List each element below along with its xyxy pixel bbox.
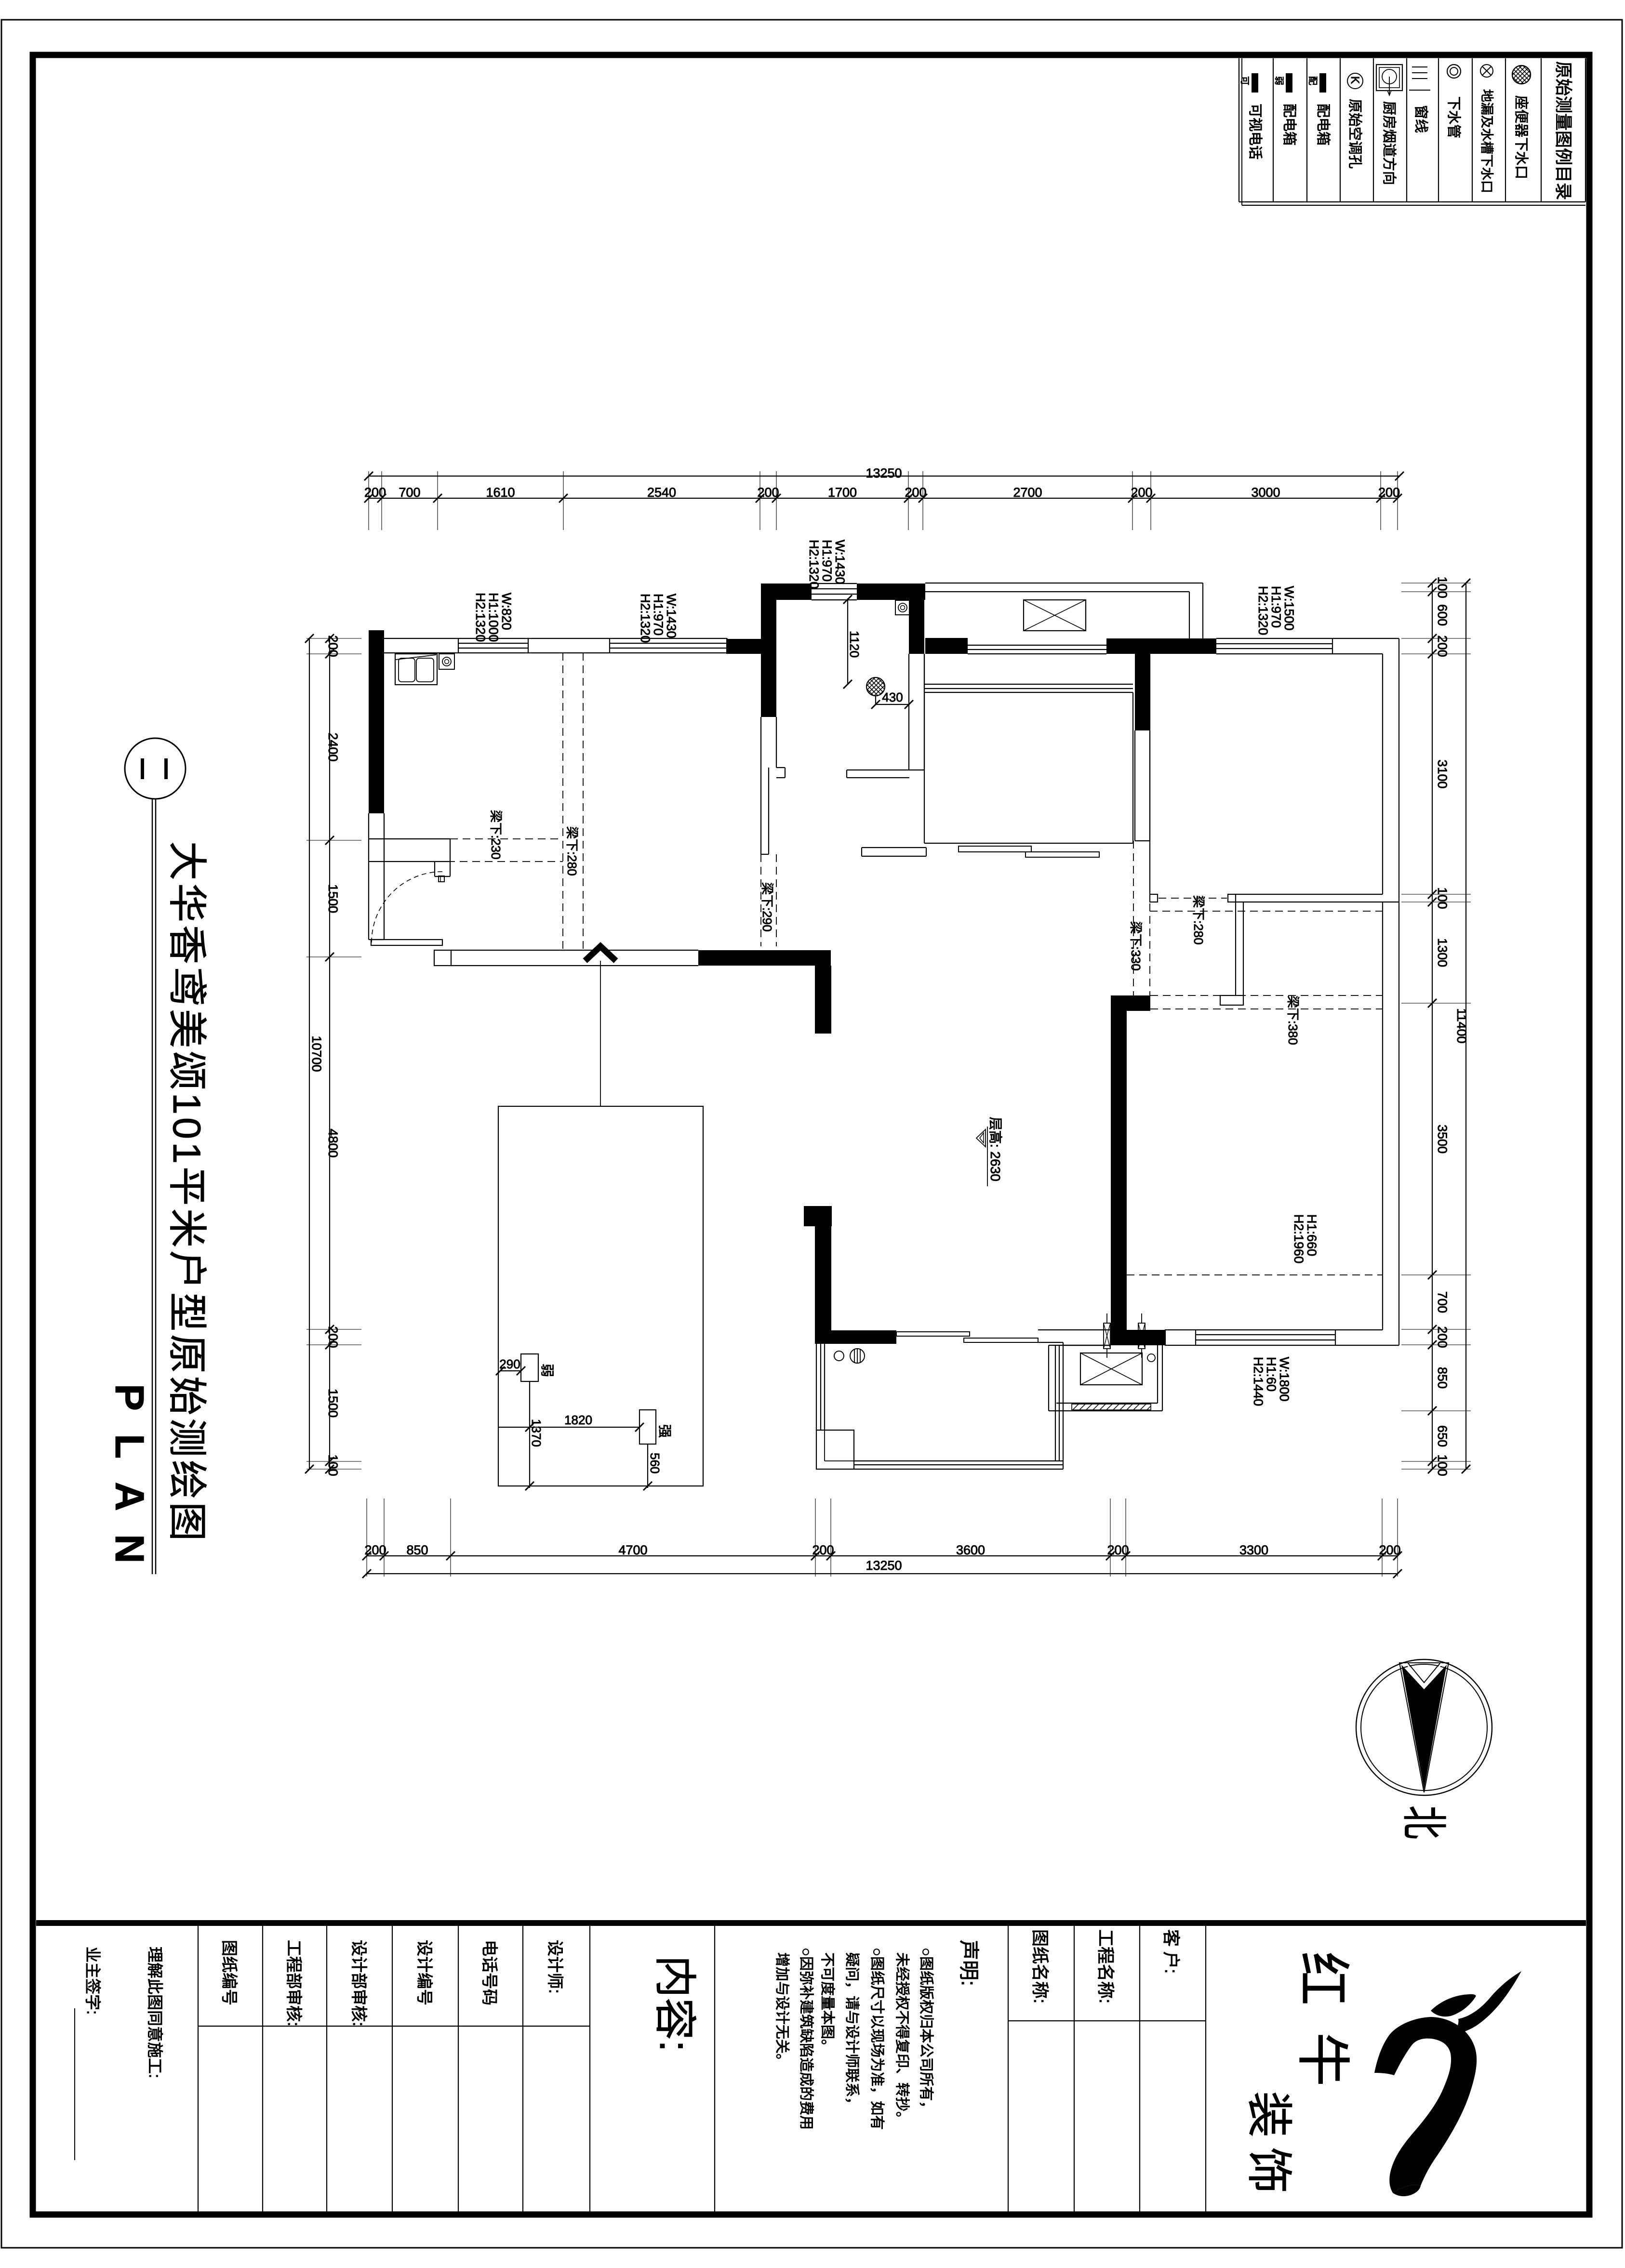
svg-text:100: 100 [1435,576,1450,598]
svg-text:600: 600 [1435,604,1450,626]
svg-text:H2:1320: H2:1320 [1256,586,1270,635]
svg-text:850: 850 [406,1543,428,1557]
svg-text:工程名称:: 工程名称: [1096,1929,1116,2003]
svg-text:W:1430: W:1430 [833,540,847,584]
svg-text:1820: 1820 [564,1413,592,1427]
svg-text:可: 可 [1239,76,1250,85]
svg-text:图纸名称:: 图纸名称: [1030,1929,1050,2003]
svg-text:200: 200 [757,485,779,500]
svg-text:W:820: W:820 [499,593,514,630]
svg-text:4700: 4700 [618,1543,647,1557]
svg-text:430: 430 [882,690,903,704]
svg-text:650: 650 [1435,1425,1450,1447]
svg-text:1300: 1300 [1435,938,1450,967]
svg-text:内容:: 内容: [651,1955,699,2052]
svg-text:H2:1440: H2:1440 [1251,1357,1265,1406]
svg-text:200: 200 [326,635,340,657]
svg-text:200: 200 [364,485,386,500]
svg-text:290: 290 [499,1357,520,1371]
svg-text:原始空调孔: 原始空调孔 [1347,99,1363,169]
svg-text:梁下:380: 梁下:380 [1286,995,1300,1045]
svg-text:工程部审核:: 工程部审核: [284,1940,303,2026]
svg-text:梁下:230: 梁下:230 [489,810,503,860]
svg-text:100: 100 [1435,887,1450,909]
svg-text:200: 200 [1107,1543,1129,1557]
svg-text:1370: 1370 [529,1419,544,1447]
svg-text:13250: 13250 [866,1558,902,1573]
svg-text:疑问，请与设计师联系，: 疑问，请与设计师联系， [844,1952,860,2111]
svg-text:不可度量本图。: 不可度量本图。 [819,1952,835,2054]
svg-text:700: 700 [399,485,420,500]
svg-text:200: 200 [326,1326,340,1348]
svg-text:13250: 13250 [866,466,902,480]
svg-text:图纸编号: 图纸编号 [220,1940,238,2005]
svg-text:强: 强 [657,1424,672,1438]
svg-text:1700: 1700 [828,485,857,500]
svg-text:层高: 2630: 层高: 2630 [988,1117,1003,1181]
svg-text:H2:1320: H2:1320 [638,594,653,643]
svg-text:2700: 2700 [1013,485,1042,500]
svg-text:200: 200 [812,1543,834,1557]
svg-text:业主签字:: 业主签字: [84,1947,102,2015]
svg-text:PLAN: PLAN [107,1384,152,1587]
svg-text:○图纸尺寸以现场为准，如有: ○图纸尺寸以现场为准，如有 [869,1948,885,2130]
svg-text:560: 560 [648,1453,662,1473]
svg-text:3300: 3300 [1239,1543,1268,1557]
svg-text:增加与设计无关。: 增加与设计无关。 [774,1952,790,2068]
svg-text:200: 200 [905,485,926,500]
svg-text:11400: 11400 [1454,1008,1469,1043]
svg-text:梁下:330: 梁下:330 [1129,921,1143,971]
svg-text:梁下:280: 梁下:280 [1191,895,1206,945]
svg-text:3500: 3500 [1435,1125,1450,1154]
svg-text:1500: 1500 [326,1389,340,1418]
svg-text:850: 850 [1435,1367,1450,1389]
svg-text:牛: 牛 [1292,2032,1353,2086]
svg-text:弱: 弱 [1274,76,1284,85]
svg-text:1120: 1120 [847,631,862,658]
svg-text:100: 100 [1435,1454,1450,1476]
svg-text:H1:1000: H1:1000 [486,593,501,642]
svg-text:3600: 3600 [956,1543,985,1557]
svg-text:K: K [1348,76,1361,84]
svg-text:红: 红 [1292,1951,1353,2005]
svg-text:地漏及水槽下水口: 地漏及水槽下水口 [1479,89,1494,193]
svg-text:H1:970: H1:970 [820,540,834,582]
svg-text:下水管: 下水管 [1446,96,1462,138]
svg-text:设计编号: 设计编号 [415,1940,433,2005]
svg-text:配电箱: 配电箱 [1281,104,1297,146]
svg-text:客 户:: 客 户: [1161,1929,1181,1974]
svg-text:H1:60: H1:60 [1264,1357,1279,1392]
svg-text:H2:1320: H2:1320 [473,593,488,642]
svg-text:3100: 3100 [1435,759,1450,788]
svg-text:W:1500: W:1500 [1282,586,1296,631]
svg-text:2540: 2540 [647,485,676,500]
svg-text:大华香鸢美颂101平米户型原始测绘图: 大华香鸢美颂101平米户型原始测绘图 [165,841,208,1544]
svg-text:200: 200 [1379,1543,1400,1557]
svg-text:200: 200 [1378,485,1400,500]
svg-text:200: 200 [1131,485,1152,500]
svg-text:电话号码: 电话号码 [480,1940,498,2005]
svg-text:配: 配 [1307,76,1318,85]
svg-text:4800: 4800 [326,1128,340,1157]
svg-text:200: 200 [364,1543,386,1557]
svg-text:10700: 10700 [309,1035,324,1072]
svg-text:装: 装 [1243,2091,1294,2137]
svg-text:梁下:280: 梁下:280 [565,826,579,876]
svg-text:设计师:: 设计师: [546,1940,564,1993]
svg-text:弱: 弱 [540,1364,555,1377]
svg-text:H2:1960: H2:1960 [1292,1214,1306,1263]
svg-text:厨房烟道方向: 厨房烟道方向 [1381,101,1397,185]
svg-text:未经授权不得复印、转抄。: 未经授权不得复印、转抄。 [894,1952,910,2126]
svg-text:北: 北 [1398,1805,1449,1839]
svg-text:声明:: 声明: [958,1940,980,1986]
svg-text:梁下:290: 梁下:290 [760,882,774,932]
svg-text:W:1430: W:1430 [664,594,679,638]
svg-text:饰: 饰 [1243,2147,1294,2193]
svg-text:200: 200 [1435,1326,1450,1348]
svg-text:1500: 1500 [326,884,340,913]
svg-text:2400: 2400 [326,732,340,761]
svg-text:1610: 1610 [486,485,515,500]
svg-text:配电箱: 配电箱 [1315,104,1331,146]
svg-text:H1:970: H1:970 [651,594,666,636]
svg-text:座便器下水口: 座便器下水口 [1513,95,1529,179]
svg-text:原始测量图例目录: 原始测量图例目录 [1554,61,1573,200]
svg-text:100: 100 [326,1454,340,1476]
svg-text:3000: 3000 [1251,485,1280,500]
svg-text:窗线: 窗线 [1413,105,1429,133]
svg-text:○图纸版权归本公司所有，: ○图纸版权归本公司所有， [918,1948,934,2115]
svg-text:W:1800: W:1800 [1277,1357,1292,1402]
svg-text:理解此图同意施工:: 理解此图同意施工: [146,1947,164,2078]
svg-text:H1:660: H1:660 [1305,1214,1319,1256]
svg-text:设计部审核:: 设计部审核: [349,1940,368,2026]
svg-text:可视电话: 可视电话 [1247,104,1263,159]
svg-text:H2:1320: H2:1320 [807,540,821,589]
svg-text:200: 200 [1435,635,1450,657]
svg-text:H1:970: H1:970 [1269,586,1283,628]
svg-text:700: 700 [1435,1291,1450,1313]
svg-text:○因弥补建筑缺陷造成的费用: ○因弥补建筑缺陷造成的费用 [798,1948,814,2130]
